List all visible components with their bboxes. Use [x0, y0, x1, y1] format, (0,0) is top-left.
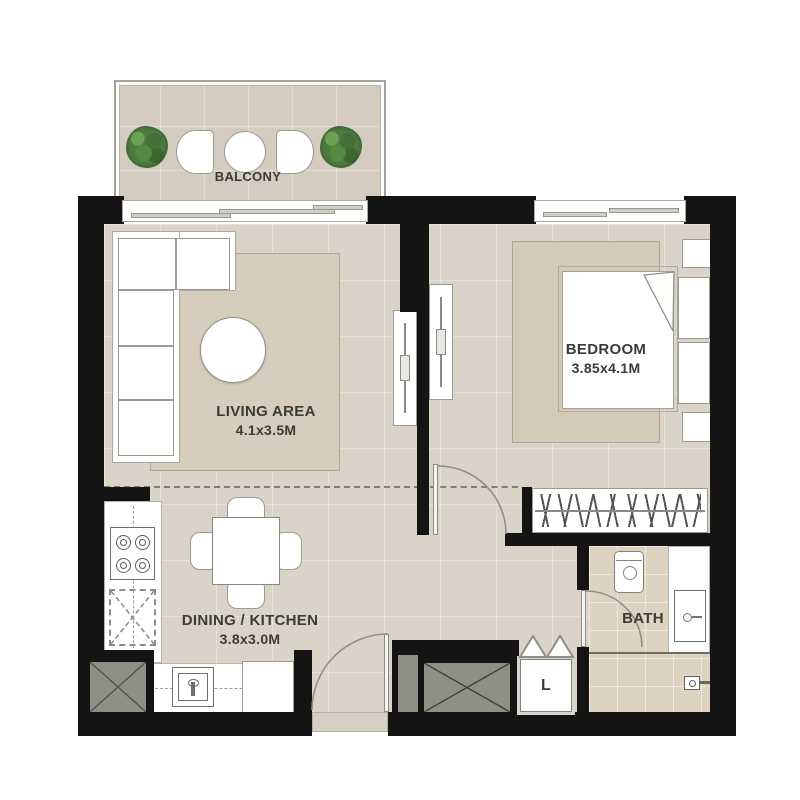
shower-valve-stub: [700, 681, 710, 684]
tv-icon: [436, 329, 446, 355]
bath-door-leaf: [581, 590, 586, 647]
burner-icon: [116, 558, 131, 573]
bedroom-label: BEDROOM 3.85x4.1M: [544, 341, 668, 377]
dishwasher: [242, 661, 294, 713]
living-area-name: LIVING AREA: [200, 403, 332, 422]
sliding-panel: [313, 205, 363, 210]
tv-unit-bedroom: [429, 284, 453, 400]
bedroom-bath-wall: [505, 533, 712, 546]
bed-pillow: [678, 342, 710, 404]
dining-kitchen-dimensions: 3.8x3.0M: [155, 631, 345, 649]
burner-icon: [135, 535, 150, 550]
bath-wall-lower: [577, 647, 589, 712]
toilet-bowl: [623, 566, 637, 580]
tv-icon: [400, 355, 410, 381]
outer-wall-right: [710, 196, 736, 736]
bath-wall-upper: [577, 546, 589, 590]
toilet: [614, 551, 644, 593]
entry-threshold: [312, 712, 388, 732]
toilet-tank: [616, 553, 642, 561]
nightstand: [682, 412, 712, 442]
hallway-divider-line: [430, 486, 518, 488]
living-area-dimensions: 4.1x3.5M: [200, 422, 332, 440]
corner-shaft: [90, 662, 146, 712]
outer-wall-top-left: [78, 196, 124, 224]
balcony-sliding-door: [122, 200, 368, 222]
bath-label: BATH: [598, 610, 688, 629]
laundry-label: L: [521, 676, 571, 696]
x-mark-icon: [90, 662, 146, 712]
balcony-table: [224, 131, 266, 173]
window-panel: [543, 212, 607, 217]
appliance-space: [109, 589, 156, 646]
balcony-chair-right: [276, 130, 314, 174]
laundry-box: L: [520, 659, 572, 712]
x-mark-icon: [424, 663, 510, 712]
window-panel: [609, 208, 679, 213]
sofa-cushion: [118, 290, 174, 346]
nightstand: [682, 239, 712, 268]
bedroom-door-leaf: [433, 464, 438, 535]
sofa-cushion: [118, 346, 174, 400]
faucet-icon: [692, 616, 702, 618]
x-mark-icon: [111, 591, 154, 644]
sliding-panel: [131, 213, 231, 218]
dining-table: [212, 517, 280, 585]
coffee-table: [200, 317, 266, 383]
sofa-cushion: [118, 400, 174, 456]
bedroom-name: BEDROOM: [544, 341, 668, 360]
living-bedroom-wall: [417, 312, 429, 535]
balcony-chair-left: [176, 130, 214, 174]
dining-chair: [227, 583, 265, 609]
outer-wall-top-mid: [366, 196, 536, 224]
wardrobe: [532, 488, 708, 533]
entry-jamb: [294, 650, 312, 736]
outer-wall-bottom-right: [388, 712, 736, 736]
valve-dot: [689, 680, 696, 687]
shower-divider: [589, 652, 710, 654]
bedroom-window: [534, 200, 686, 222]
living-area-label: LIVING AREA 4.1x3.5M: [200, 403, 332, 439]
shower-valve-icon: [684, 676, 700, 690]
bed-mattress: [562, 271, 674, 409]
kitchen-stub-wall: [104, 487, 150, 501]
duct-shaft: [424, 663, 510, 712]
dining-chair: [190, 532, 214, 570]
burner-icon: [116, 535, 131, 550]
burner-icon: [135, 558, 150, 573]
living-bedroom-wall-thick: [400, 224, 429, 312]
sofa-cushion: [118, 238, 176, 290]
kitchen-sink: [172, 667, 214, 707]
shaft-slab: [398, 655, 418, 712]
cooktop: [110, 527, 155, 580]
sofa-cushion: [176, 238, 230, 290]
faucet-icon: [188, 679, 199, 687]
bed-pillow: [678, 277, 710, 339]
floor-plan: BALCONY LIVING AREA 4.1x3.5M BEDROOM 3.8…: [0, 0, 800, 800]
tv-unit-living: [393, 310, 417, 426]
wardrobe-stub-wall: [522, 487, 532, 533]
dining-chair: [278, 532, 302, 570]
living-dining-divider-line: [104, 486, 420, 488]
bedroom-dimensions: 3.85x4.1M: [544, 360, 668, 378]
dining-kitchen-name: DINING / KITCHEN: [155, 612, 345, 631]
wardrobe-rod: [535, 510, 705, 512]
entry-door-leaf: [384, 634, 389, 712]
balcony-label: BALCONY: [188, 169, 308, 185]
dining-kitchen-label: DINING / KITCHEN 3.8x3.0M: [155, 612, 345, 648]
